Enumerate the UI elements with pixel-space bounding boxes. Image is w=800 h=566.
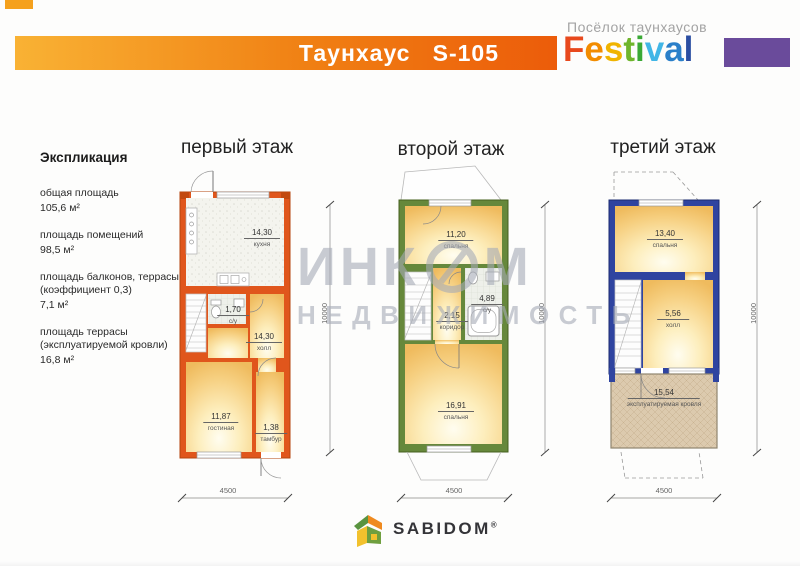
festival-letter: s: [604, 30, 623, 69]
page: Таунхаус S-105 Посёлок таунхаусов Festiv…: [0, 0, 800, 566]
room-label: 1,70 с/у: [217, 299, 249, 325]
window: [639, 200, 683, 206]
floor-title-1: первый этаж: [181, 137, 293, 159]
exit-door-arc: [261, 458, 281, 478]
width-dimension-label: 4500: [220, 486, 237, 495]
room-label: 13,40 спальня: [647, 223, 683, 249]
entry-door-arc: [191, 171, 213, 192]
festival-letter: t: [623, 30, 635, 69]
stairs: [186, 294, 206, 352]
floor-plan-3: [585, 160, 800, 505]
window: [427, 446, 471, 452]
room-label: 14,30 кухня: [244, 222, 280, 248]
festival-letter: F: [563, 30, 584, 69]
height-dimension-label: 10000: [320, 303, 329, 324]
terrace-dashed-outline: [621, 452, 703, 478]
window: [197, 452, 241, 458]
title-bar: Таунхаус S-105: [15, 36, 557, 70]
sabidom-house-icon: [352, 511, 386, 547]
window: [217, 192, 269, 198]
floor-title-2: второй этаж: [398, 139, 505, 161]
festival-logo: Festival: [563, 31, 693, 68]
stairs: [615, 280, 641, 368]
height-dimension-label: 10000: [537, 303, 546, 324]
window: [669, 368, 705, 374]
width-dimension-label: 4500: [656, 486, 673, 495]
registered-mark: ®: [491, 520, 499, 529]
room-label: 5,56 холл: [657, 303, 689, 329]
toilet-icon: [469, 272, 478, 284]
festival-letter: i: [635, 30, 645, 69]
room-hall: [208, 328, 248, 358]
height-dimension-label: 10000: [749, 303, 758, 324]
scan-corner-strip: [5, 0, 33, 9]
width-dimension-label: 4500: [446, 486, 463, 495]
sink-icon: [486, 272, 499, 281]
room-label: 1,38 тамбур: [255, 417, 287, 443]
room-label: 11,20 спальня: [438, 224, 473, 250]
sabidom-wordmark: SABIDOM®: [393, 519, 499, 539]
festival-letter: l: [684, 30, 694, 69]
room-label: 15,54 эксплуатируемая кровля: [627, 382, 702, 408]
window: [615, 368, 635, 374]
sink-unit-icon: [217, 273, 249, 286]
roof-outline: [401, 166, 501, 200]
floor-title-3: третий этаж: [610, 137, 715, 159]
sabidom-brand: SABIDOM®: [352, 511, 499, 547]
scan-edge-shadow: [0, 561, 800, 566]
festival-letter: e: [584, 30, 603, 69]
page-title: Таунхаус S-105: [299, 40, 499, 67]
room-label: 4,89 с/у: [471, 288, 503, 314]
stairs: [405, 272, 431, 340]
room-label: 2,15 коридор: [436, 305, 468, 331]
window: [429, 200, 471, 206]
festival-letter: v: [645, 30, 664, 69]
room-bedroom-2: [405, 344, 502, 444]
room-label: 16,91 спальня: [438, 395, 474, 421]
roof-dashed-outline: [614, 172, 698, 200]
festival-letter: a: [664, 30, 683, 69]
room-label: 14,30 холл: [246, 326, 282, 352]
festival-brand-block: [724, 38, 790, 67]
room-label: 11,87 гостиная: [203, 406, 238, 432]
bay-outline: [407, 452, 501, 480]
floor-plan-2: [375, 160, 575, 505]
